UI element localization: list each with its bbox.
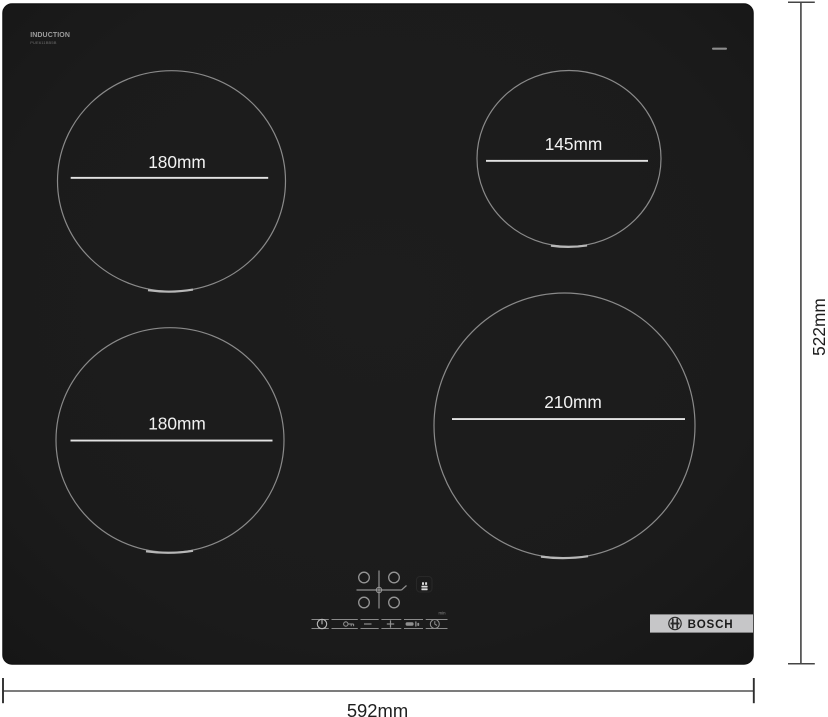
- svg-text:INDUCTION: INDUCTION: [30, 32, 70, 39]
- svg-text:592mm: 592mm: [347, 700, 408, 717]
- svg-text:210mm: 210mm: [544, 392, 602, 412]
- svg-text:180mm: 180mm: [148, 152, 206, 172]
- svg-text:min: min: [439, 610, 447, 615]
- svg-text:145mm: 145mm: [545, 134, 603, 154]
- svg-text:522mm: 522mm: [809, 298, 828, 356]
- svg-text:PUE611BB5B: PUE611BB5B: [30, 40, 57, 45]
- svg-text:BOSCH: BOSCH: [688, 618, 734, 631]
- svg-text:180mm: 180mm: [148, 414, 206, 434]
